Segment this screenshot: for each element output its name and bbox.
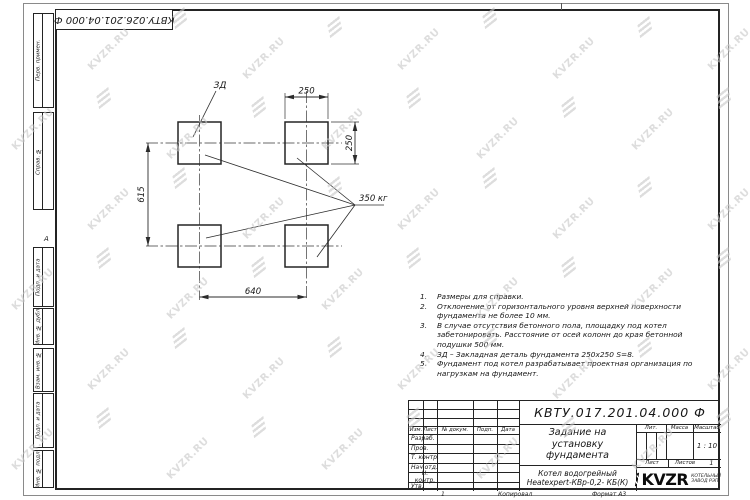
footer-format: Формат А3	[592, 491, 626, 498]
note-number: 4.	[420, 350, 437, 360]
row-razrab: Разраб.	[409, 434, 439, 444]
row-nkontr: Н. контр.	[409, 472, 439, 482]
col-header-izm: Изм.	[409, 426, 423, 434]
drawing-sheet: КВТУ.026.201.04.000 Ф Перв. примен. Спра…	[0, 0, 750, 500]
row-prov: Пров.	[409, 444, 439, 454]
notes-list: 1. Размеры для справки. 2. Отклонение от…	[420, 292, 716, 378]
note-number: 3.	[420, 321, 437, 350]
title-block: Изм. Лист № докум. Подп. Дата Разраб. Пр…	[408, 400, 720, 490]
note-item: 5. Фундамент под котел разрабатывает про…	[420, 359, 716, 378]
col-header-ndokum: № докум.	[437, 426, 473, 434]
note-item: 1. Размеры для справки.	[420, 292, 716, 302]
detail-label-zd: ЗД	[214, 81, 227, 91]
product-line1: Котел водогрейный	[538, 469, 617, 478]
header-masshtab: Масштаб	[693, 424, 721, 432]
note-text: В случае отсутствия бетонного пола, площ…	[437, 321, 716, 350]
header-listov: Листов	[668, 459, 702, 467]
note-item: 3. В случае отсутствия бетонного пола, п…	[420, 321, 716, 350]
note-text: Размеры для справки.	[437, 292, 716, 302]
header-lit: Лит.	[636, 424, 666, 432]
title-block-doc-number: КВТУ.017.201.04.000 Ф	[519, 401, 721, 424]
dim-bottom-640: 640	[245, 287, 261, 297]
product-name: Котел водогрейный Heatexpert-КВр-0,2- КБ…	[519, 465, 636, 491]
note-item: 4. ЗД – Закладная деталь фундамента 250х…	[420, 350, 716, 360]
col-header-list: Лист	[423, 426, 437, 434]
row-tkontr: Т. контр.	[409, 453, 439, 463]
dim-right-250: 250	[345, 135, 355, 151]
footer-number: 1	[441, 491, 445, 498]
sheets-count: 1	[702, 459, 721, 467]
header-list2: Лист	[636, 459, 668, 467]
load-label-350kg: 350 кг	[359, 194, 388, 204]
note-number: 2.	[420, 302, 437, 321]
kvzr-logo-icon	[635, 472, 640, 486]
note-number: 1.	[420, 292, 437, 302]
row-utv: Утв.	[409, 482, 439, 492]
note-text: ЗД – Закладная деталь фундамента 250х250…	[437, 350, 716, 360]
note-text: Фундамент под котел разрабатывает проект…	[437, 359, 716, 378]
foundation-pads	[178, 122, 328, 267]
footer-kopiroval: Копировал	[498, 491, 532, 498]
kvzr-logo-subtitle: КОТЕЛЬНЫЙ ЗАВОД РЭП	[691, 474, 721, 485]
note-item: 2. Отклонение от горизонтального уровня …	[420, 302, 716, 321]
kvzr-logo-text: KVZR	[641, 470, 688, 489]
col-header-data: Дата	[497, 426, 519, 434]
drawing-title: Задание на установку фундамента	[519, 424, 636, 465]
note-number: 5.	[420, 359, 437, 378]
note-text: Отклонение от горизонтального уровня вер…	[437, 302, 716, 321]
col-header-podp: Подп.	[473, 426, 497, 434]
scale-value: 1 : 10	[693, 432, 721, 459]
dim-top-250: 250	[298, 87, 314, 97]
product-line2: Heatexpert-КВр-0,2- КБ(К)	[527, 478, 629, 487]
extension-lines	[285, 93, 359, 164]
company-logo: KVZR КОТЕЛЬНЫЙ ЗАВОД РЭП	[636, 467, 721, 491]
logo-sub-line2: ЗАВОД РЭП	[691, 479, 721, 484]
dim-left-615: 615	[137, 186, 147, 202]
header-massa: Масса	[666, 424, 693, 432]
